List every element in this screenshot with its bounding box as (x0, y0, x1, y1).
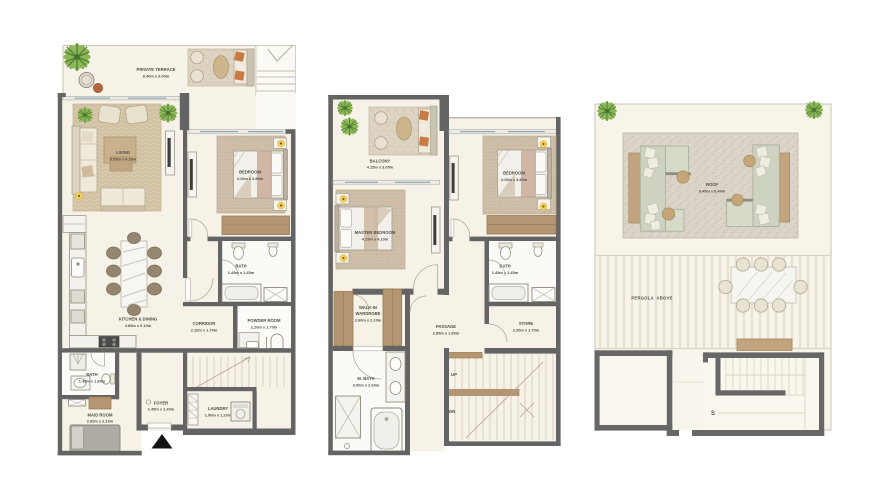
svg-text:MAID ROOM: MAID ROOM (88, 413, 113, 418)
svg-text:WALK-IN: WALK-IN (359, 305, 377, 310)
svg-text:1.45m x 1.45m: 1.45m x 1.45m (492, 270, 519, 275)
svg-text:1.45m x 1.40m: 1.45m x 1.40m (148, 407, 175, 412)
svg-text:S: S (711, 411, 715, 417)
svg-text:WARDROBE: WARDROBE (356, 311, 381, 316)
svg-text:1.45m x 1.45m: 1.45m x 1.45m (228, 270, 255, 275)
svg-text:UP: UP (451, 372, 457, 377)
svg-text:2.60m x 2.10m: 2.60m x 2.10m (355, 318, 382, 323)
svg-text:BALCONY: BALCONY (370, 159, 391, 164)
svg-text:LIVING: LIVING (116, 150, 130, 155)
svg-text:ROOF: ROOF (706, 182, 719, 187)
svg-text:PASSAGE: PASSAGE (436, 324, 456, 329)
svg-text:BATH: BATH (235, 264, 246, 269)
svg-text:8.40m x 3.00m: 8.40m x 3.00m (143, 74, 170, 79)
svg-text:1.45m x 1.80m: 1.45m x 1.80m (79, 379, 106, 384)
svg-text:2.10m x 1.70m: 2.10m x 1.70m (191, 328, 218, 333)
svg-text:4.10m x 3.80m: 4.10m x 3.80m (501, 177, 528, 182)
svg-text:BATH: BATH (86, 372, 97, 377)
svg-text:BEDROOM: BEDROOM (503, 171, 525, 176)
svg-text:2.20m x 1.70m: 2.20m x 1.70m (513, 328, 540, 333)
svg-text:2.20m x 1.70m: 2.20m x 1.70m (251, 325, 278, 330)
svg-text:1.90m x 1.20m: 1.90m x 1.20m (205, 413, 232, 418)
svg-text:BEDROOM: BEDROOM (239, 170, 261, 175)
svg-text:4.15m x 4.10m: 4.15m x 4.10m (362, 237, 389, 242)
svg-text:4.85m x 6.10m: 4.85m x 6.10m (125, 323, 152, 328)
svg-text:CORRIDOR: CORRIDOR (193, 321, 216, 326)
svg-text:STORE: STORE (519, 321, 534, 326)
svg-text:FOYER: FOYER (154, 401, 168, 406)
svg-text:2.60m x 2.10m: 2.60m x 2.10m (87, 419, 114, 424)
svg-text:2.85m x 1.80m: 2.85m x 1.80m (433, 331, 460, 336)
svg-text:9.45m x 8.40m: 9.45m x 8.40m (699, 189, 726, 194)
svg-text:PERGOLA ABOVE: PERGOLA ABOVE (631, 296, 672, 301)
svg-text:PRIVATE TERRACE: PRIVATE TERRACE (137, 67, 176, 72)
svg-text:3.90m x 2.60m: 3.90m x 2.60m (353, 383, 380, 388)
svg-text:M. BATH: M. BATH (357, 376, 374, 381)
svg-text:POWDER ROOM: POWDER ROOM (247, 318, 281, 323)
svg-text:4.15m x 3.05m: 4.15m x 3.05m (367, 165, 394, 170)
svg-text:BATH: BATH (499, 264, 510, 269)
svg-text:DN: DN (449, 409, 455, 414)
svg-text:4.10m x 3.80m: 4.10m x 3.80m (237, 176, 264, 181)
svg-text:KITCHEN & DINING: KITCHEN & DINING (119, 317, 158, 322)
svg-text:MASTER BEDROOM: MASTER BEDROOM (355, 230, 396, 235)
svg-text:5.55m x 4.10m: 5.55m x 4.10m (110, 157, 137, 162)
svg-text:LAUNDRY: LAUNDRY (208, 406, 229, 411)
